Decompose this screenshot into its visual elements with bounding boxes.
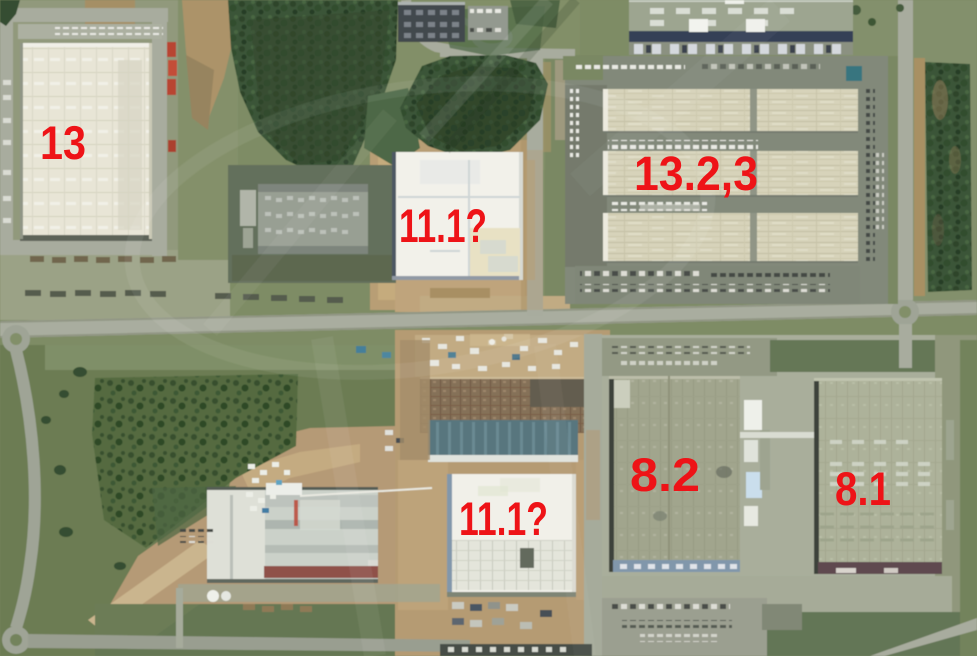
svg-text:13.2,3: 13.2,3 <box>634 148 758 201</box>
svg-text:8.2: 8.2 <box>630 448 700 501</box>
svg-text:11.1?: 11.1? <box>399 199 487 252</box>
svg-text:8.1: 8.1 <box>835 462 891 515</box>
svg-text:11.1?: 11.1? <box>459 492 548 545</box>
svg-text:13: 13 <box>40 116 86 169</box>
